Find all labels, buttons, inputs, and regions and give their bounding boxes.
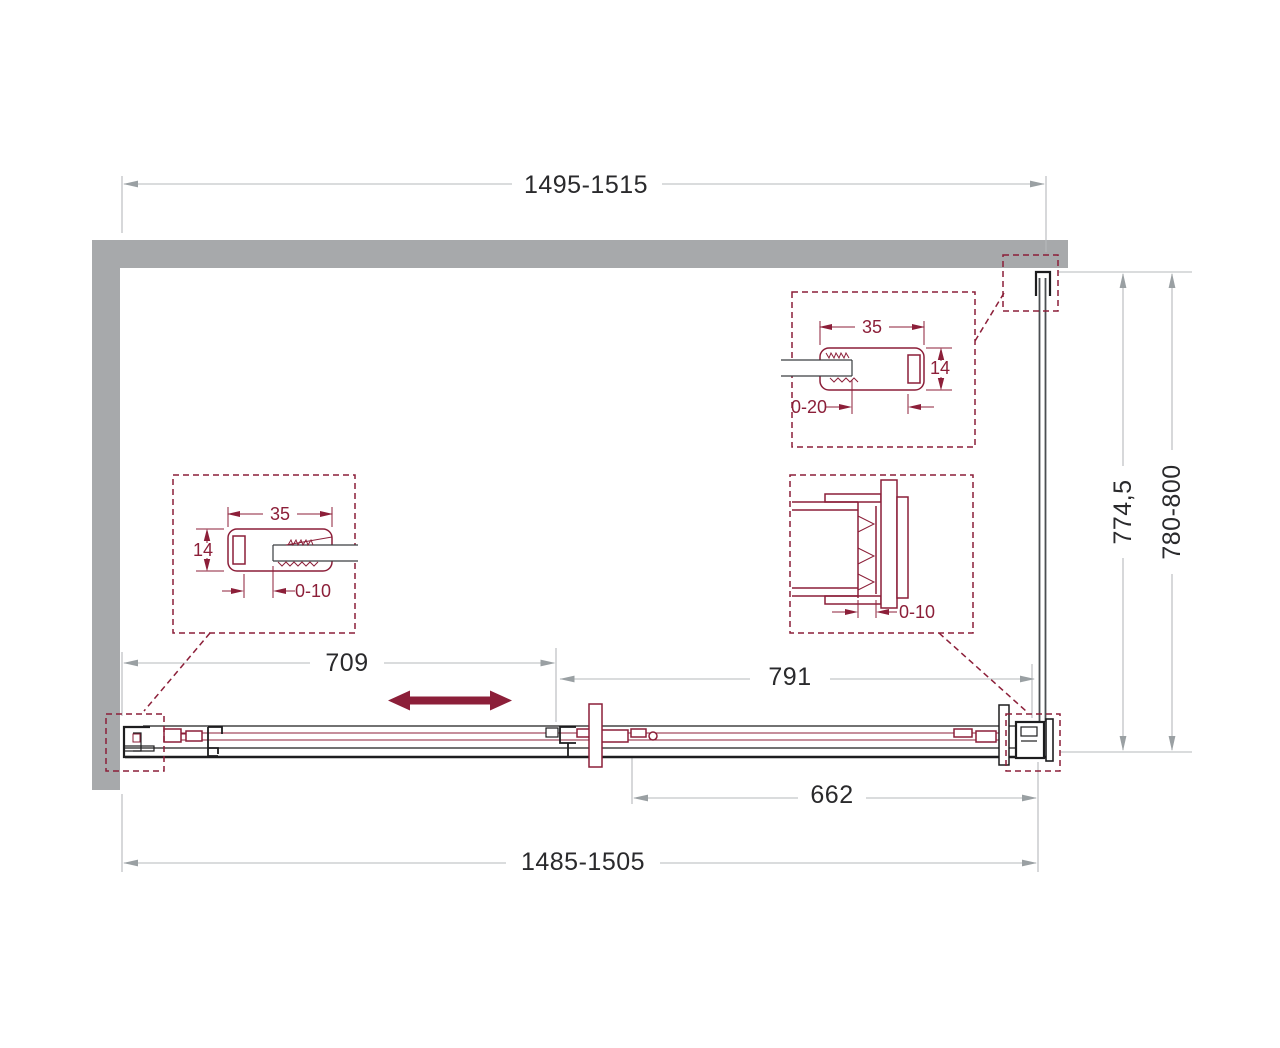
dim-depth-inner-value: 774,5	[1109, 479, 1137, 544]
dim-depth-outer-value: 780-800	[1158, 464, 1186, 559]
detail-left-width: 35	[270, 504, 290, 524]
drawing-background	[0, 0, 1280, 1048]
detail-top-thickness: 14	[930, 358, 950, 378]
dim-opening-width-value: 662	[810, 781, 853, 809]
detail-corner-adjust: 0-10	[899, 602, 935, 622]
detail-left-thickness: 14	[193, 540, 213, 560]
dim-top-width-value: 1495-1515	[524, 171, 648, 199]
door-handle	[589, 704, 602, 767]
dim-right-width-value: 791	[768, 663, 811, 691]
detail-top-width: 35	[862, 317, 882, 337]
dim-bottom-width-value: 1485-1505	[521, 848, 645, 876]
wall-left	[92, 268, 120, 790]
dim-left-width-value: 709	[325, 649, 368, 677]
detail-top-adjust: 0-20	[791, 397, 827, 417]
technical-drawing: 1495-1515 774,5 780-800 709 791 662 1485…	[0, 0, 1280, 1048]
wall-top	[92, 240, 1068, 268]
detail-left-adjust: 0-10	[295, 581, 331, 601]
